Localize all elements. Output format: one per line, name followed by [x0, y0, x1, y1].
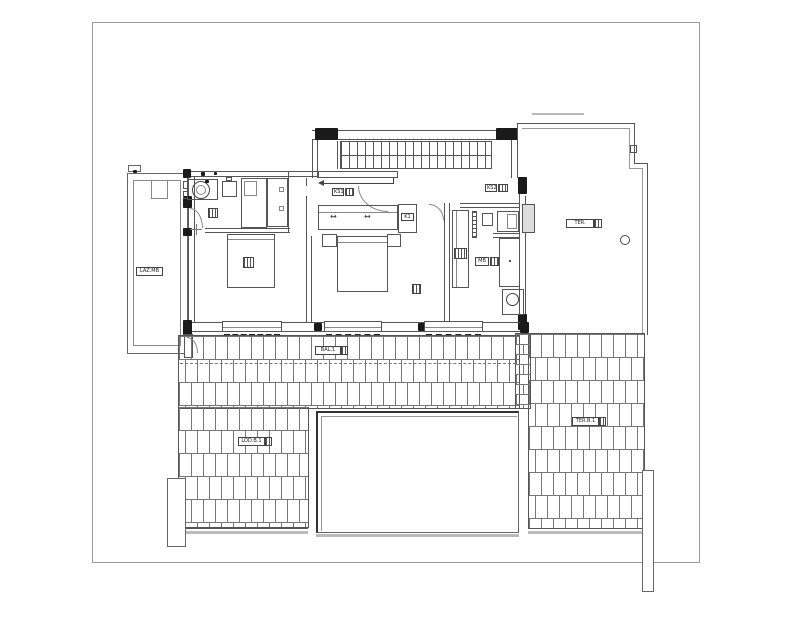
bath-east-wall — [288, 172, 289, 232]
stair-mid-line — [341, 155, 491, 156]
washbasin-inner — [196, 185, 206, 195]
toilet — [482, 213, 493, 226]
wardrobe-tall-a-inner — [244, 181, 257, 196]
wall-pilaster — [522, 204, 535, 233]
stair-direction-line — [322, 183, 394, 184]
roof-left-lower — [178, 407, 309, 528]
gutter-strip-right — [642, 470, 654, 592]
stair-top-wall-inner — [312, 139, 512, 140]
wardrobe-tall-b — [267, 178, 288, 227]
bath2-register — [490, 257, 499, 266]
terrace-outline-right1 — [634, 123, 635, 164]
bed-center-headline — [338, 242, 387, 243]
closet-label-text: K1 — [404, 214, 410, 220]
bath-south-wall-a — [205, 228, 290, 229]
bath-south-wall-b — [205, 232, 290, 233]
towel-radiator — [472, 211, 477, 238]
bedroom-divider-stub — [306, 178, 307, 186]
stair-landing-edge — [318, 171, 398, 178]
roof-left-label-symbol — [265, 437, 272, 446]
hall-label-text: KS2 — [487, 185, 497, 191]
wall-block — [214, 172, 217, 175]
balcony-inner — [133, 180, 181, 346]
bath2-cabinet-register — [454, 248, 467, 259]
roof-fold-dashed-line — [180, 363, 516, 364]
shower-drain — [506, 293, 519, 306]
stair-arrow-hook — [393, 177, 394, 183]
bath2-label: MB — [475, 257, 489, 266]
chimney-column — [515, 333, 531, 409]
wall-block — [520, 322, 529, 333]
bath2-label-text: MB — [478, 258, 486, 264]
terrace-outline-step — [634, 163, 648, 164]
window-2-glassline — [325, 327, 381, 328]
wardrobe-mark — [279, 206, 284, 211]
stair-divider — [337, 141, 338, 169]
roof-band-label: BAL.1 — [315, 346, 341, 355]
tap-icon — [205, 180, 209, 183]
terrace-drain-circle — [620, 235, 630, 245]
landing-register — [345, 188, 354, 196]
wall-block — [183, 320, 192, 335]
stair-terrace-connector — [517, 123, 518, 178]
washbasin-bowl — [507, 214, 517, 229]
stair-direction-arrow — [318, 180, 324, 186]
courtyard-inner-left — [321, 416, 322, 531]
balcony-label-text: LAZ.MB — [140, 268, 159, 274]
terrace-outline-right2 — [647, 163, 648, 335]
toilet-valve — [226, 177, 232, 181]
stair-top-wall-outer — [312, 130, 512, 131]
terrace-label: TER. — [566, 219, 594, 228]
landing-label-text: KS1 — [334, 189, 344, 195]
wall-block — [314, 323, 322, 331]
roof-edge-line — [532, 113, 584, 115]
north-wall-outer — [186, 171, 318, 172]
roof-right-label-text: TER.B.1 — [576, 418, 595, 424]
roof-left-band — [178, 335, 520, 409]
column — [496, 128, 518, 140]
closet-label: K1 — [401, 213, 414, 221]
bath2-north-wall-b — [460, 207, 520, 208]
wall-tick — [183, 191, 188, 199]
bed-left-register — [243, 257, 254, 268]
bath2-stub-wall-a — [493, 233, 520, 234]
wall-block — [201, 172, 205, 176]
landing-label: KS1 — [332, 188, 344, 196]
roof-left-label-text: LOD.B.1 — [241, 438, 261, 444]
courtyard — [316, 411, 519, 533]
courtyard-inner-top — [321, 416, 517, 417]
eave-gray-left — [180, 531, 308, 534]
wall-block — [518, 177, 527, 194]
balcony-notch — [151, 180, 168, 199]
wardrobe-mark — [279, 187, 284, 192]
wall-block — [183, 169, 191, 178]
bathtub — [499, 238, 520, 287]
window-1 — [222, 321, 282, 332]
floor-register — [412, 284, 421, 294]
eave-line-right — [528, 528, 644, 529]
terrace-inner-step — [629, 168, 643, 169]
bed-center — [337, 236, 388, 292]
door-cross-v — [196, 224, 197, 235]
nightstand-right — [387, 234, 401, 247]
window-3 — [424, 321, 483, 332]
bedroom-divider-b — [311, 236, 312, 322]
bathtub-drain — [509, 260, 511, 262]
wall-tick — [183, 181, 188, 189]
terrace-label-text: TER. — [574, 220, 585, 226]
eave-gray-courtyard — [316, 534, 519, 537]
balcony-corner-block — [133, 170, 137, 173]
terrace-outline-top — [517, 123, 635, 124]
bath2-west-wall-b — [449, 203, 450, 322]
terrace-label-symbol — [594, 219, 602, 228]
column — [315, 128, 338, 140]
roof-band-label-text: BAL.1 — [321, 347, 335, 353]
slide-arrow-icon: ↔ — [364, 213, 371, 221]
window-3-glassline — [425, 327, 482, 328]
hall-register — [498, 184, 508, 192]
stair-right-wall — [511, 140, 512, 178]
bath2-west-wall-a — [444, 203, 445, 322]
stair-left-wall-a — [312, 140, 313, 178]
bed-left-headline — [228, 239, 274, 240]
terrace-inner-right2 — [642, 168, 643, 335]
bath2-north-wall-a — [460, 203, 520, 204]
slide-arrow-icon: ↔ — [330, 213, 337, 221]
roof-right-label-symbol — [599, 417, 606, 426]
eave-line-left — [180, 528, 308, 529]
terrace-edge-tick — [630, 145, 637, 153]
bedroom-divider-a — [306, 196, 307, 322]
roof-band-label-symbol — [341, 346, 348, 355]
terrace-inner-top — [522, 128, 630, 129]
stair-treads — [340, 141, 492, 169]
floor-register — [208, 208, 218, 218]
hall-label: KS2 — [485, 184, 497, 192]
window-2 — [324, 321, 382, 332]
eave-gray-right — [528, 531, 644, 534]
north-wall-inner — [186, 176, 318, 177]
floor-plan-canvas: TER. LAZ.MB — [0, 0, 800, 640]
nightstand-left — [322, 234, 337, 247]
gutter-strip-left — [167, 478, 186, 547]
roof-right-label: TER.B.1 — [572, 417, 599, 426]
roof-right — [528, 333, 645, 529]
balcony-label: LAZ.MB — [136, 267, 163, 276]
toilet-cistern — [222, 181, 237, 197]
window-1-glassline — [223, 327, 281, 328]
roof-left-label: LOD.B.1 — [238, 437, 265, 446]
